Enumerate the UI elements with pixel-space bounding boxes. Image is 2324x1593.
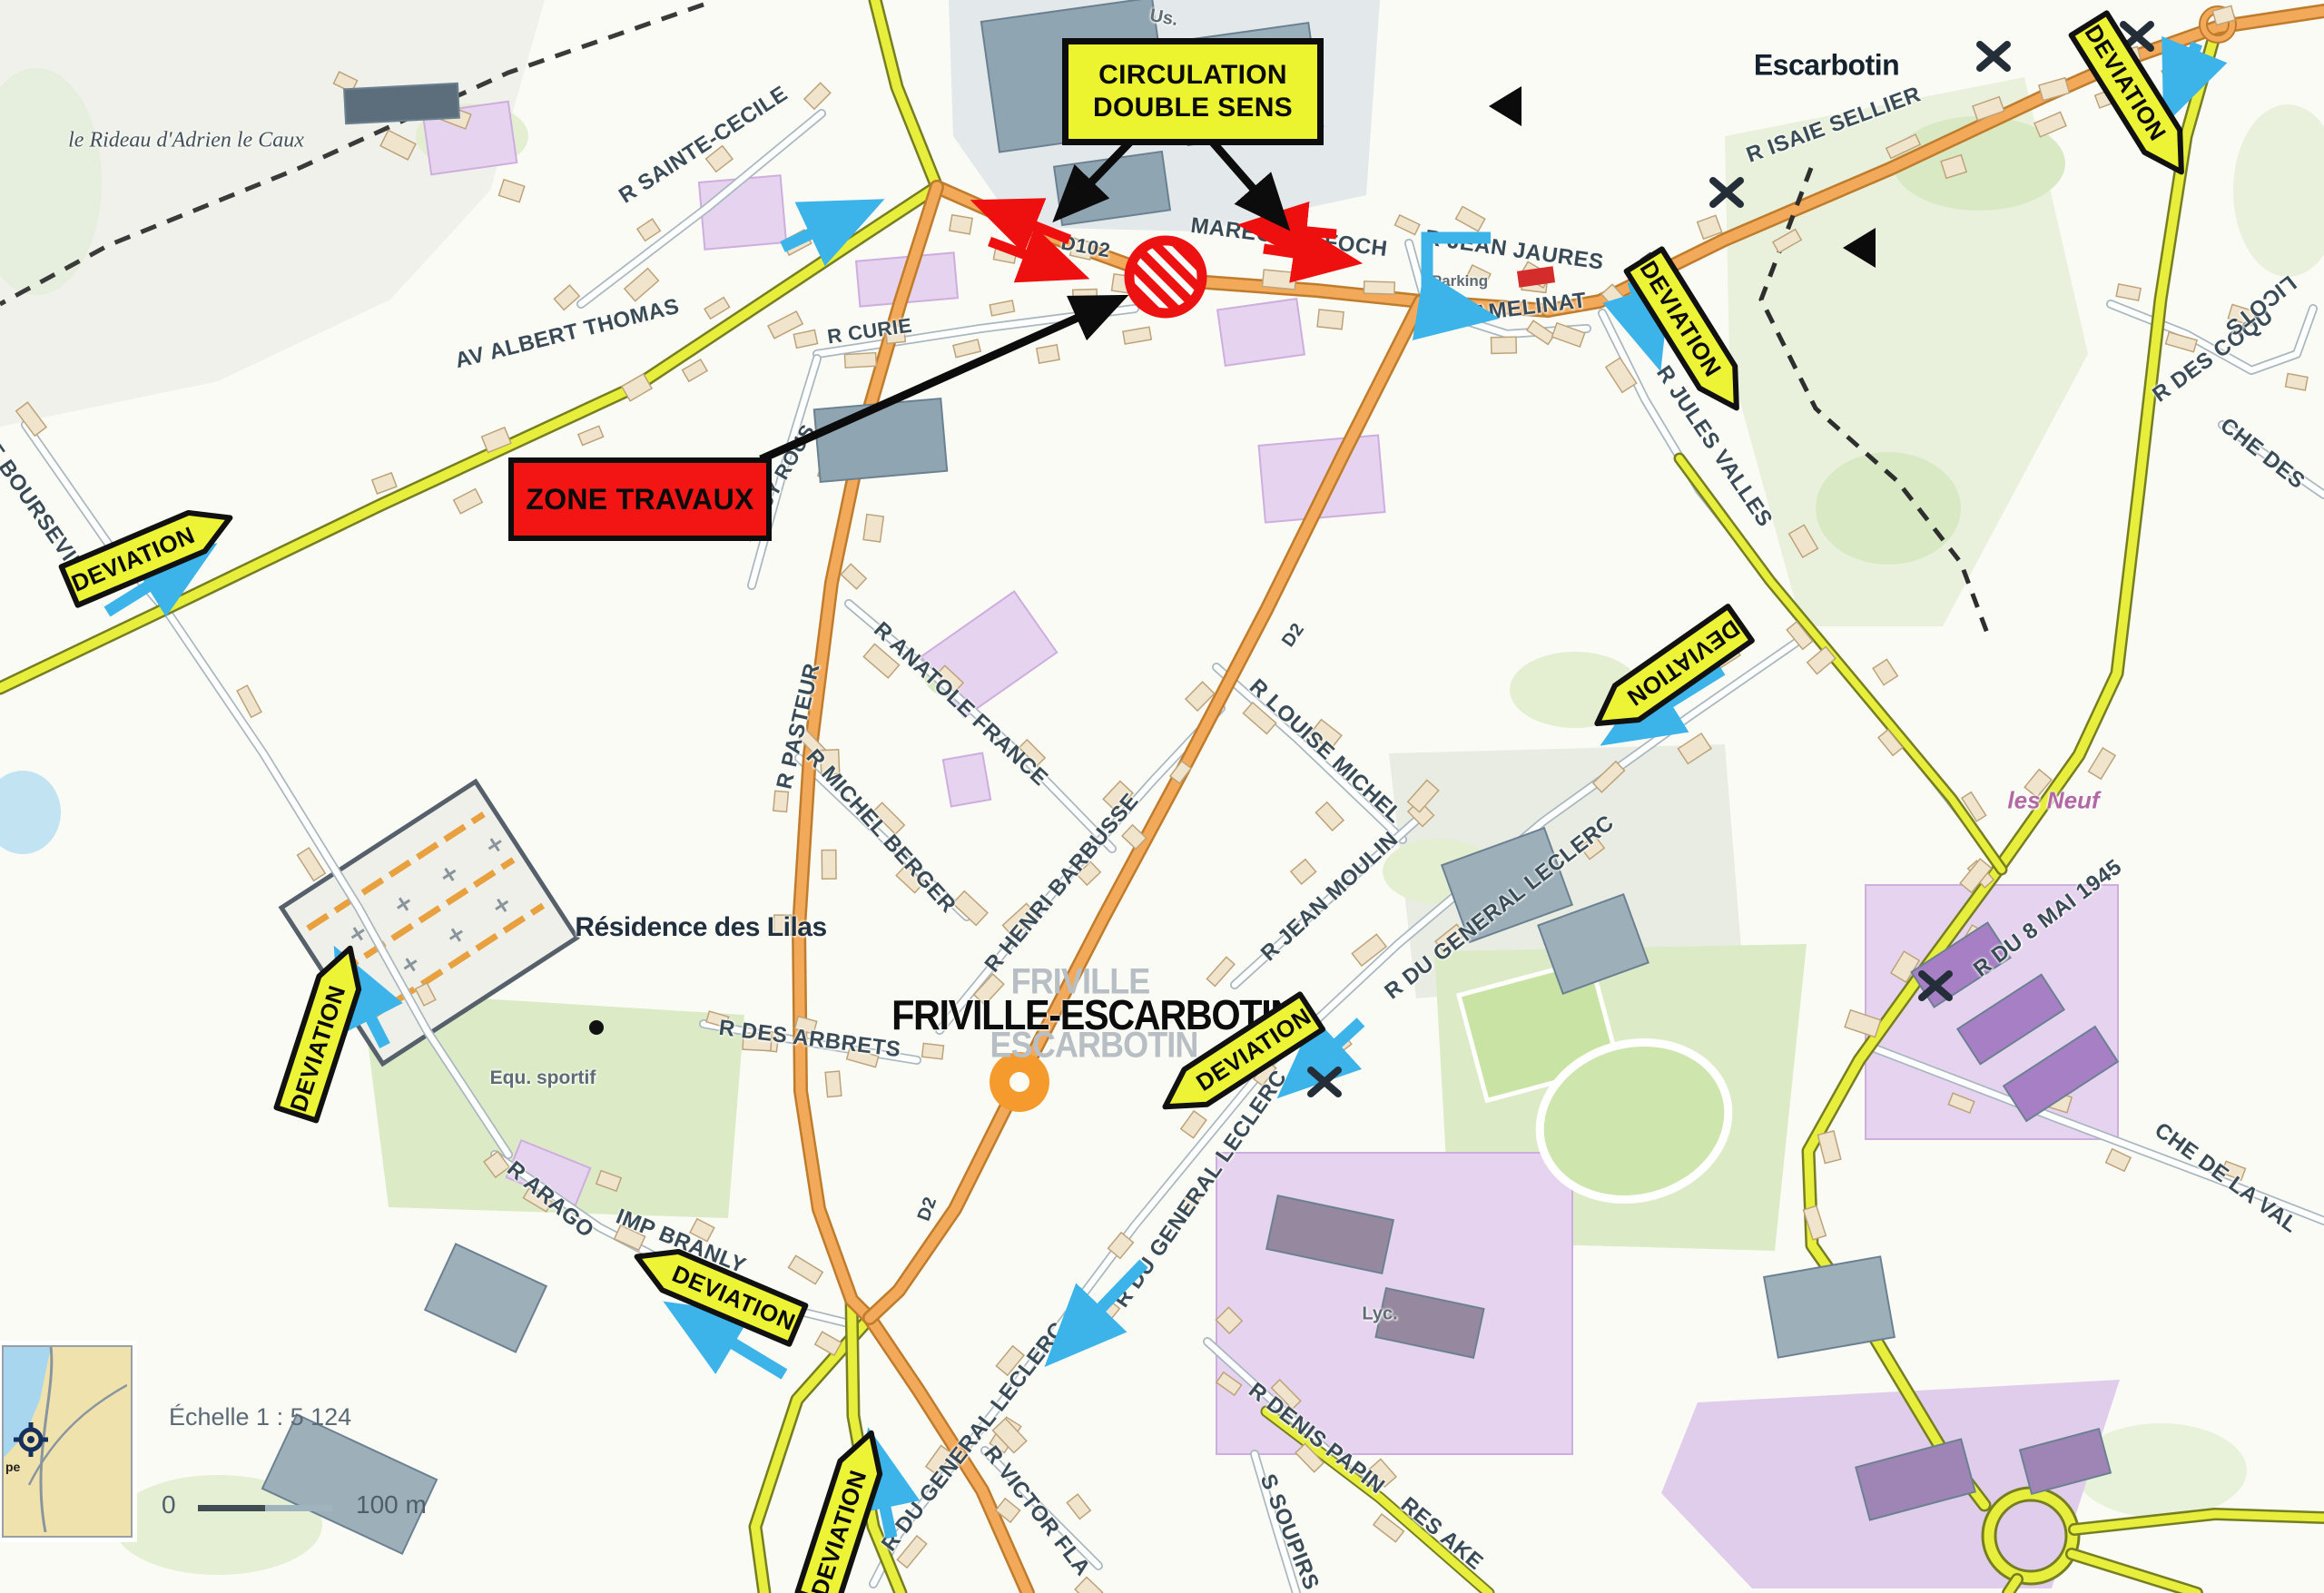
deviation-route-arrow [783,206,870,247]
work-zone-icon [1098,209,1234,345]
annotation-svg [0,0,2324,1593]
callout-leader-arrow [761,300,1118,459]
road-cross-mark [1713,181,1740,204]
circulation-callout: CIRCULATION DOUBLE SENS [1062,38,1324,145]
double-sens-arrow [1251,226,1336,234]
callout-leader-arrow [1207,136,1283,222]
inset-town-fragment: pe [5,1460,20,1474]
circulation-line1: CIRCULATION [1098,59,1287,92]
scale-distance-label: 100 m [356,1490,427,1519]
deviation-route-arrow [1427,238,1491,316]
scale-text: Échelle 1 : 5 124 [169,1403,351,1431]
double-sens-arrow [983,205,1069,240]
inset-overview-map: pe [2,1345,133,1538]
deviation-route-arrow [2170,44,2197,111]
inset-map-graphic [4,1347,127,1532]
circulation-line2: DOUBLE SENS [1093,92,1293,124]
scale-zero-label: 0 [162,1490,176,1519]
deviation-route-arrow [1056,1264,1144,1355]
double-sens-arrow [990,241,1077,274]
map-canvas: le Rideau d'Adrien le CauxR SAINTE-CECIL… [0,0,2324,1593]
road-cross-mark [1922,974,1949,998]
zone-travaux-callout: ZONE TRAVAUX [508,457,772,541]
double-sens-arrow [1264,249,1349,261]
zone-travaux-label: ZONE TRAVAUX [526,482,753,516]
triangle-marker [1843,228,1876,268]
road-cross-mark [1311,1070,1338,1094]
road-cross-mark [1980,44,2007,68]
scale-bar [198,1505,332,1511]
scale-bar-dark-half [198,1505,265,1511]
callout-leader-arrow [1060,136,1136,214]
triangle-marker [1489,86,1521,126]
